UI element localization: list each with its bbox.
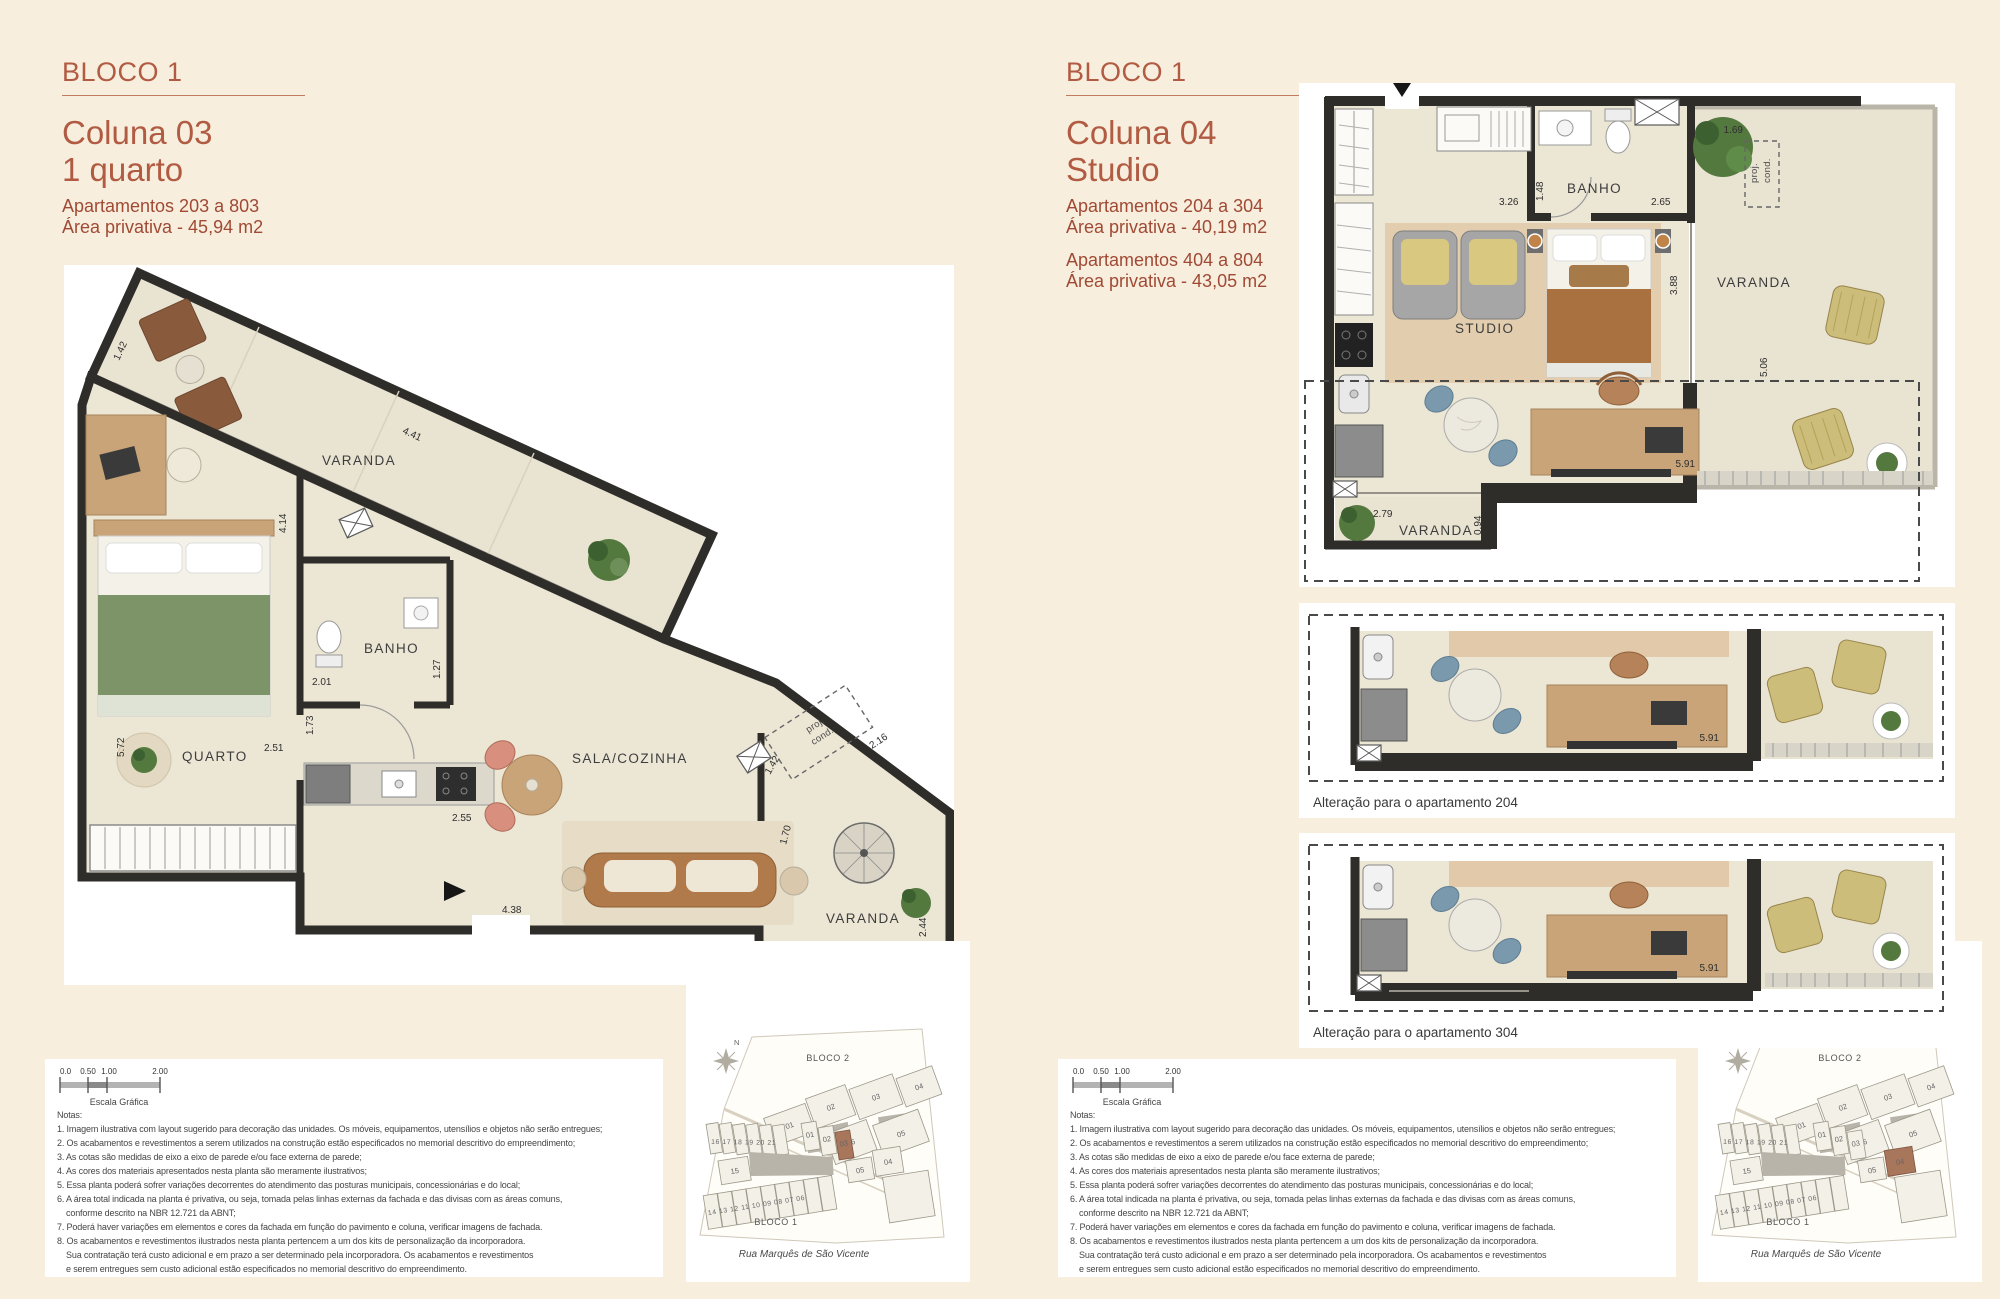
unit-number-highlight: 03 xyxy=(839,1138,849,1148)
scale-bar: 0.0 0.50 1.00 2.00 Escala Gráfica xyxy=(57,1063,227,1107)
column-title: Coluna 03 1 quarto xyxy=(62,114,305,188)
wicker-chair xyxy=(1831,639,1888,696)
right-plan-panel: proj. cond. xyxy=(1299,83,1955,587)
right-floor-plan: proj. cond. xyxy=(1299,83,1955,587)
scale-tick: 0.50 xyxy=(1093,1067,1109,1076)
note-line: 1. Imagem ilustrativa com layout sugerid… xyxy=(57,1123,602,1136)
sofa xyxy=(562,821,808,925)
room-label: VARANDA xyxy=(1717,275,1791,290)
apartment-range: Apartamentos 404 a 804 xyxy=(1066,250,1309,271)
room-label: STUDIO xyxy=(1455,321,1514,336)
plant xyxy=(901,888,931,918)
dim-label: 2.01 xyxy=(312,677,332,688)
note-line: 7. Poderá haver variações em elementos e… xyxy=(1070,1221,1615,1234)
note-line: 1. Imagem ilustrativa com layout sugerid… xyxy=(1070,1123,1615,1136)
notes-title: Notas: xyxy=(1070,1109,1615,1122)
unit-type: 1 quarto xyxy=(62,151,305,188)
room-label: BANHO xyxy=(364,641,419,656)
scale-tick: 0.0 xyxy=(60,1067,72,1076)
dim-label: 2.65 xyxy=(1651,197,1671,208)
fridge xyxy=(1361,689,1407,741)
left-floor-plan: proj. cond. VARANDA QUARTO BANHO SA xyxy=(64,265,954,985)
toilet xyxy=(1605,109,1631,153)
scale-tick: 2.00 xyxy=(152,1067,168,1076)
brochure-page: BLOCO 1 Coluna 03 1 quarto Apartamentos … xyxy=(0,0,2000,1299)
alteration-caption: Alteração para o apartamento 304 xyxy=(1313,1025,1518,1040)
dim-label: 5.91 xyxy=(1700,733,1720,744)
note-line: Sua contratação terá custo adicional e e… xyxy=(1070,1249,1615,1262)
bloco1-label: BLOCO 1 xyxy=(1766,1217,1809,1227)
apartment-area: Área privativa - 45,94 m2 xyxy=(62,217,305,238)
notes-block: Notas: 1. Imagem ilustrativa com layout … xyxy=(57,1109,602,1277)
right-notes-panel: 0.0 0.50 1.00 2.00 Escala Gráfica Notas:… xyxy=(1058,1059,1676,1277)
alteration-304-panel: 5.91 Alteração para o apartamento 304 xyxy=(1299,833,1955,1048)
scale-caption: Escala Gráfica xyxy=(1103,1097,1162,1107)
note-line: 2. Os acabamentos e revestimentos a sere… xyxy=(57,1137,602,1150)
note-line: conforme descrito na NBR 12.721 da ABNT; xyxy=(1070,1207,1615,1220)
note-line: 5. Essa planta poderá sofrer variações d… xyxy=(1070,1179,1615,1192)
hanging-chair xyxy=(834,823,894,883)
left-sitemap-panel: N BLOCO 2 01 02 03 04 06 05 xyxy=(686,941,970,1282)
note-line: 8. Os acabamentos e revestimentos ilustr… xyxy=(1070,1235,1615,1248)
apartment-range: Apartamentos 204 a 304 xyxy=(1066,196,1309,217)
note-line: 6. A área total indicada na planta é pri… xyxy=(57,1193,602,1206)
room-label: QUARTO xyxy=(182,749,248,764)
duct-box xyxy=(1333,481,1357,497)
plant-table xyxy=(1873,703,1909,739)
dim-label: 2.79 xyxy=(1373,509,1393,520)
unit-number: 04 xyxy=(883,1157,893,1167)
bathroom-sink xyxy=(1539,111,1591,145)
dim-label: 5.91 xyxy=(1676,459,1696,470)
note-line: Sua contratação terá custo adicional e e… xyxy=(57,1249,602,1262)
apartment-info: Apartamentos 203 a 803 Área privativa - … xyxy=(62,196,305,238)
block-title: BLOCO 1 xyxy=(1066,57,1309,88)
cabinet xyxy=(1437,107,1531,151)
apartment-area: Área privativa - 43,05 m2 xyxy=(1066,271,1309,292)
dim-label: 5.72 xyxy=(116,737,127,757)
proj-label: proj. xyxy=(1749,163,1760,183)
compass-north: N xyxy=(734,1038,739,1047)
left-plan-panel: proj. cond. VARANDA QUARTO BANHO SA xyxy=(64,265,954,985)
scale-tick: 1.00 xyxy=(1114,1067,1130,1076)
unit-number: 05 xyxy=(855,1165,865,1175)
unit-number: 01 xyxy=(1817,1130,1827,1140)
unit-number: 15 xyxy=(730,1166,740,1176)
alteration-304-plan: 5.91 xyxy=(1299,833,1955,1023)
scale-tick: 0.50 xyxy=(80,1067,96,1076)
dim-label: 1.73 xyxy=(305,715,316,735)
plant xyxy=(1339,505,1375,541)
room-label: VARANDA xyxy=(322,453,396,468)
deck-stripes xyxy=(1765,973,1933,987)
duct-box xyxy=(1635,99,1679,125)
dim-label: 5.06 xyxy=(1759,357,1770,377)
note-line: 6. A área total indicada na planta é pri… xyxy=(1070,1193,1615,1206)
bed xyxy=(94,520,274,716)
room-label: BANHO xyxy=(1567,181,1622,196)
block-title: BLOCO 1 xyxy=(62,57,305,88)
note-line: 8. Os acabamentos e revestimentos ilustr… xyxy=(57,1235,602,1248)
note-line: e serem entregues sem custo adicional es… xyxy=(1070,1263,1615,1276)
street-label: Rua Marquês de São Vicente xyxy=(739,1249,870,1260)
dim-label: 5.91 xyxy=(1700,963,1720,974)
unit-type: Studio xyxy=(1066,151,1309,188)
note-line: 7. Poderá haver variações em elementos e… xyxy=(57,1221,602,1234)
duct-box xyxy=(1357,975,1381,991)
scale-tick: 1.00 xyxy=(101,1067,117,1076)
bloco1-label: BLOCO 1 xyxy=(754,1217,797,1227)
right-header: BLOCO 1 Coluna 04 Studio Apartamentos 20… xyxy=(1066,57,1309,304)
unit-number: 03 xyxy=(1851,1138,1861,1148)
bloco2-label: BLOCO 2 xyxy=(1818,1053,1861,1063)
dim-label: 3.88 xyxy=(1669,275,1680,295)
plant-table xyxy=(1873,933,1909,969)
dim-label: 2.55 xyxy=(452,813,472,824)
column-title: Coluna 04 Studio xyxy=(1066,114,1309,188)
left-header: BLOCO 1 Coluna 03 1 quarto Apartamentos … xyxy=(62,57,305,250)
dim-label: 4.38 xyxy=(502,905,522,916)
note-line: conforme descrito na NBR 12.721 da ABNT; xyxy=(57,1207,602,1220)
dim-label: 1.48 xyxy=(1535,181,1546,201)
kitchen-sink xyxy=(1363,635,1393,679)
compass-icon: N xyxy=(713,1038,739,1074)
column-name: Coluna 04 xyxy=(1066,114,1309,151)
deck-stripes xyxy=(1765,743,1933,757)
toilet xyxy=(316,621,342,667)
fridge xyxy=(1361,919,1407,971)
note-line: 5. Essa planta poderá sofrer variações d… xyxy=(57,1179,602,1192)
unit-number: 02 xyxy=(1834,1134,1844,1144)
wicker-chair xyxy=(1824,284,1886,346)
deck-stripes xyxy=(1697,471,1933,485)
alteration-204-plan: 5.91 xyxy=(1299,603,1955,793)
apartment-area: Área privativa - 40,19 m2 xyxy=(1066,217,1309,238)
site-map: N BLOCO 2 01 02 03 04 06 05 xyxy=(686,941,970,1282)
unit-number: 02 xyxy=(822,1134,832,1144)
notes-block: Notas: 1. Imagem ilustrativa com layout … xyxy=(1070,1109,1615,1277)
kitchen-counter xyxy=(304,763,494,805)
alteration-204-panel: 5.91 Alteração para o apartamento 204 xyxy=(1299,603,1955,818)
unit-number: 01 xyxy=(805,1130,815,1140)
duct-box xyxy=(1357,745,1381,761)
column-name: Coluna 03 xyxy=(62,114,305,151)
cond-label: cond. xyxy=(1762,158,1773,183)
note-line: 3. As cotas são medidas de eixo a eixo d… xyxy=(1070,1151,1615,1164)
entrance-door xyxy=(472,915,530,935)
bathroom-sink xyxy=(404,598,438,628)
unit-number-highlight: 04 xyxy=(1895,1157,1905,1167)
note-line: 4. As cores dos materiais apresentados n… xyxy=(57,1165,602,1178)
apartment-range: Apartamentos 203 a 803 xyxy=(62,196,305,217)
wardrobe xyxy=(90,825,296,871)
kitchen-sink xyxy=(1363,865,1393,909)
note-line: 4. As cores dos materiais apresentados n… xyxy=(1070,1165,1615,1178)
dim-label: 1.69 xyxy=(1724,125,1744,136)
unit-number: 05 xyxy=(1867,1165,1877,1175)
dim-label: 3.26 xyxy=(1499,197,1519,208)
title-rule xyxy=(62,95,305,96)
notes-title: Notas: xyxy=(57,1109,602,1122)
wicker-chair xyxy=(1831,869,1888,926)
street-label: Rua Marquês de São Vicente xyxy=(1751,1249,1882,1260)
note-line: 2. Os acabamentos e revestimentos a sere… xyxy=(1070,1137,1615,1150)
scale-tick: 2.00 xyxy=(1165,1067,1181,1076)
unit-row: 16 17 18 19 20 21 xyxy=(1723,1139,1788,1147)
room-label: VARANDA xyxy=(1399,523,1473,538)
note-line: 3. As cotas são medidas de eixo a eixo d… xyxy=(57,1151,602,1164)
apartment-info: Apartamentos 204 a 304 Área privativa - … xyxy=(1066,196,1309,292)
room-label: SALA/COZINHA xyxy=(572,751,688,766)
alteration-caption: Alteração para o apartamento 204 xyxy=(1313,795,1518,810)
plant xyxy=(588,539,630,581)
title-rule xyxy=(1066,95,1309,96)
scale-caption: Escala Gráfica xyxy=(90,1097,149,1107)
dim-label: 0.94 xyxy=(1473,515,1484,535)
wardrobe xyxy=(1335,109,1373,195)
shelves xyxy=(1335,203,1373,315)
dim-label: 2.44 xyxy=(918,917,929,937)
bed xyxy=(1527,229,1671,377)
cooktop xyxy=(1335,323,1373,367)
dim-label: 1.27 xyxy=(432,659,443,679)
bloco2-label: BLOCO 2 xyxy=(806,1053,849,1063)
left-notes-panel: 0.0 0.50 1.00 2.00 Escala Gráfica Notas:… xyxy=(45,1059,663,1277)
unit-row: 16 17 18 19 20 21 xyxy=(711,1139,776,1147)
room-label: VARANDA xyxy=(826,911,900,926)
scale-tick: 0.0 xyxy=(1073,1067,1085,1076)
scale-bar: 0.0 0.50 1.00 2.00 Escala Gráfica xyxy=(1070,1063,1240,1107)
unit-number: 15 xyxy=(1742,1166,1752,1176)
fridge xyxy=(1335,425,1383,477)
note-line: e serem entregues sem custo adicional es… xyxy=(57,1263,602,1276)
dim-label: 2.16 xyxy=(868,731,891,751)
dim-label: 2.51 xyxy=(264,743,284,754)
dim-label: 4.14 xyxy=(278,513,289,533)
